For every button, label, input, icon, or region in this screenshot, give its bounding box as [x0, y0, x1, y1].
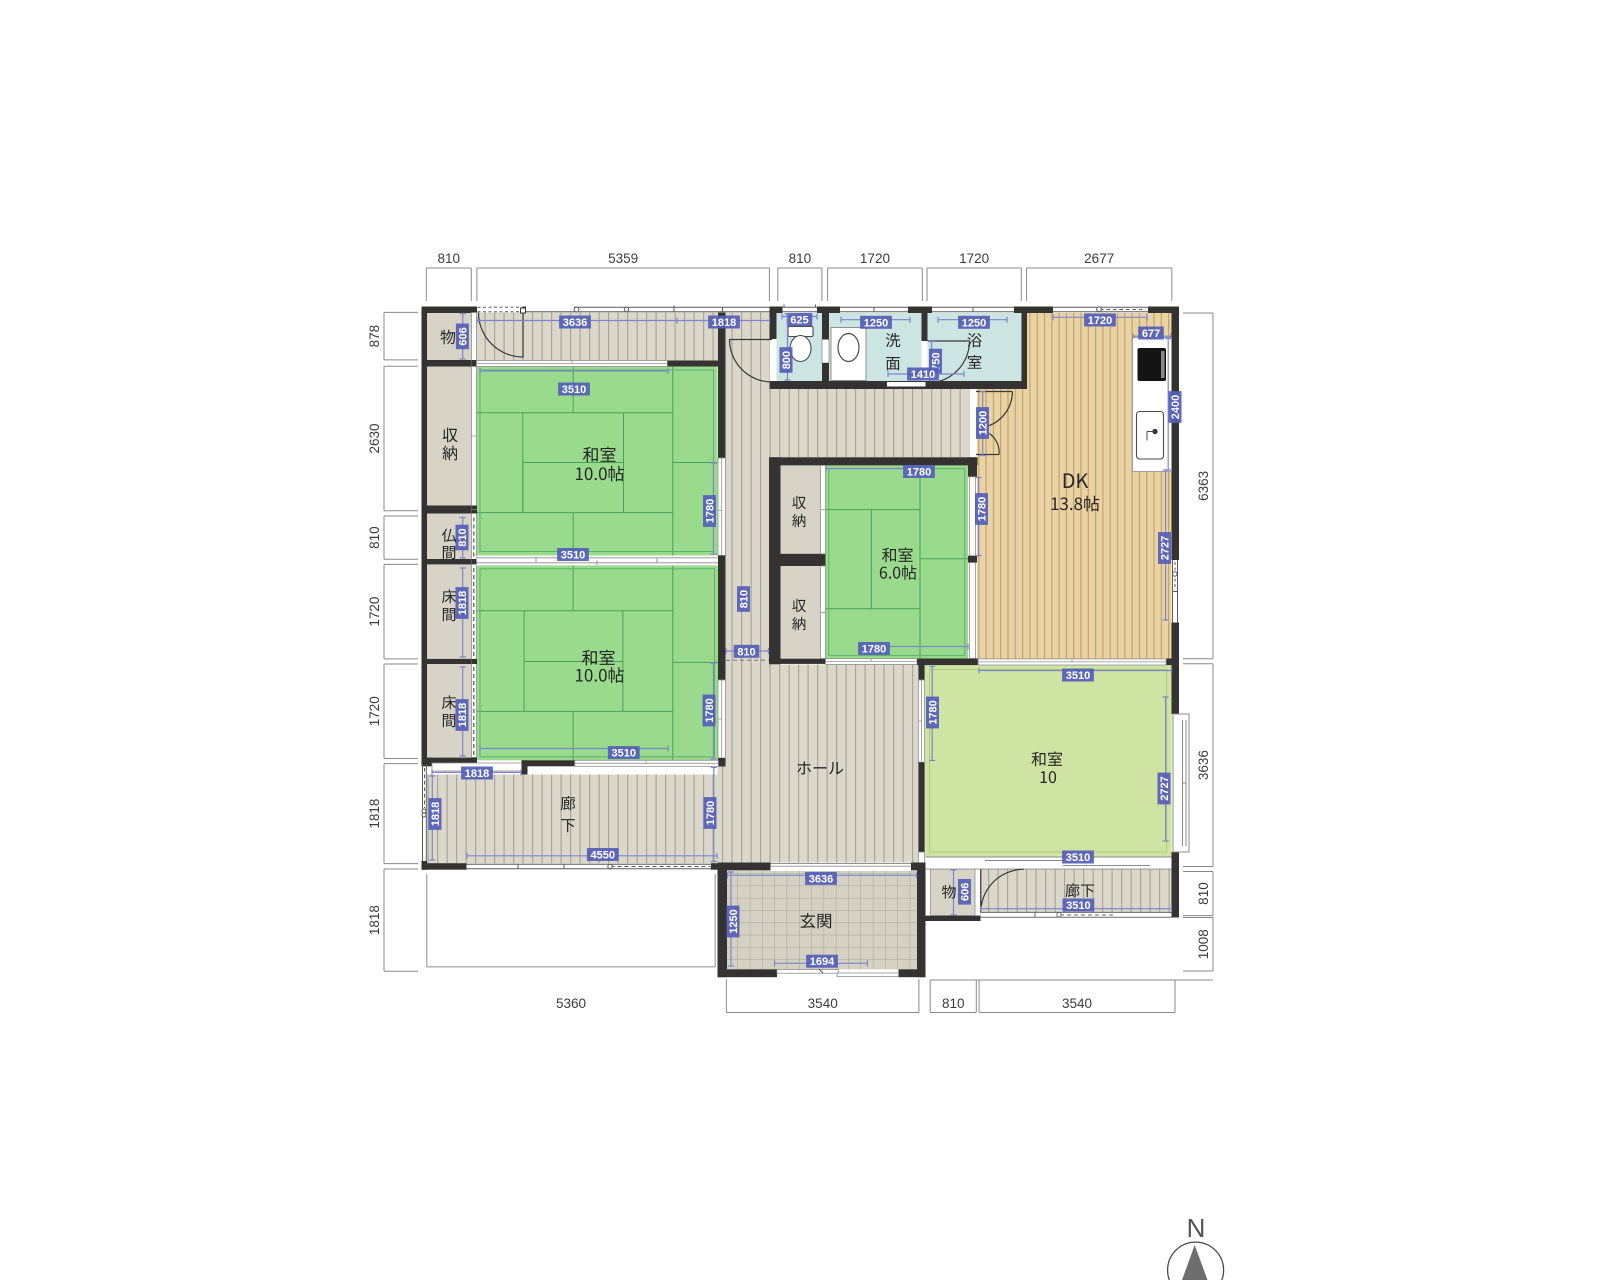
svg-text:3510: 3510: [612, 748, 636, 760]
svg-text:2400: 2400: [1170, 395, 1182, 419]
svg-text:1720: 1720: [1088, 315, 1112, 327]
svg-text:3540: 3540: [808, 996, 838, 1011]
svg-text:1720: 1720: [860, 251, 890, 266]
svg-text:3540: 3540: [1062, 996, 1092, 1011]
svg-text:1410: 1410: [911, 369, 935, 381]
svg-text:N: N: [1187, 1213, 1206, 1243]
svg-text:3636: 3636: [1196, 750, 1211, 780]
svg-text:6363: 6363: [1196, 471, 1211, 501]
svg-text:4550: 4550: [591, 850, 615, 862]
svg-text:677: 677: [1142, 328, 1160, 340]
svg-text:1780: 1780: [705, 801, 717, 825]
svg-text:3510: 3510: [562, 384, 586, 396]
svg-text:3636: 3636: [809, 873, 833, 885]
svg-text:1720: 1720: [959, 251, 989, 266]
svg-text:3510: 3510: [561, 550, 585, 562]
svg-text:1780: 1780: [704, 698, 716, 722]
svg-text:2677: 2677: [1084, 251, 1114, 266]
svg-text:1250: 1250: [728, 909, 740, 933]
svg-text:1818: 1818: [367, 799, 382, 829]
svg-text:1720: 1720: [367, 696, 382, 726]
svg-text:5359: 5359: [608, 251, 638, 266]
svg-text:810: 810: [367, 526, 382, 549]
svg-text:1720: 1720: [367, 597, 382, 627]
svg-text:810: 810: [789, 251, 812, 266]
svg-text:1818: 1818: [465, 768, 489, 780]
svg-text:5360: 5360: [556, 996, 586, 1011]
svg-text:1200: 1200: [978, 411, 990, 435]
svg-text:1250: 1250: [864, 317, 888, 329]
svg-text:1780: 1780: [705, 499, 717, 523]
svg-text:810: 810: [737, 646, 755, 658]
svg-text:1780: 1780: [862, 644, 886, 656]
svg-text:1008: 1008: [1196, 929, 1211, 959]
svg-text:810: 810: [739, 590, 751, 608]
svg-text:3636: 3636: [563, 317, 587, 329]
svg-text:800: 800: [781, 351, 793, 369]
svg-text:1694: 1694: [810, 956, 835, 968]
svg-text:1250: 1250: [962, 317, 986, 329]
svg-text:1818: 1818: [457, 703, 469, 727]
svg-text:810: 810: [438, 251, 461, 266]
svg-text:1780: 1780: [977, 497, 989, 521]
svg-text:3510: 3510: [1066, 900, 1090, 912]
svg-text:810: 810: [942, 996, 965, 1011]
svg-text:1780: 1780: [928, 700, 940, 724]
svg-text:810: 810: [457, 528, 469, 546]
svg-text:878: 878: [367, 325, 382, 348]
svg-text:625: 625: [790, 315, 808, 327]
svg-text:3510: 3510: [1066, 852, 1090, 864]
svg-text:2727: 2727: [1159, 776, 1171, 800]
svg-text:606: 606: [457, 327, 469, 345]
svg-text:1818: 1818: [430, 802, 442, 826]
svg-text:2727: 2727: [1160, 536, 1172, 560]
svg-text:606: 606: [960, 883, 972, 901]
svg-text:2630: 2630: [367, 423, 382, 453]
svg-text:1818: 1818: [712, 317, 736, 329]
svg-text:1780: 1780: [907, 467, 931, 479]
svg-text:1818: 1818: [367, 905, 382, 935]
svg-text:1818: 1818: [457, 591, 469, 615]
svg-text:3510: 3510: [1066, 670, 1090, 682]
svg-text:810: 810: [1196, 882, 1211, 905]
